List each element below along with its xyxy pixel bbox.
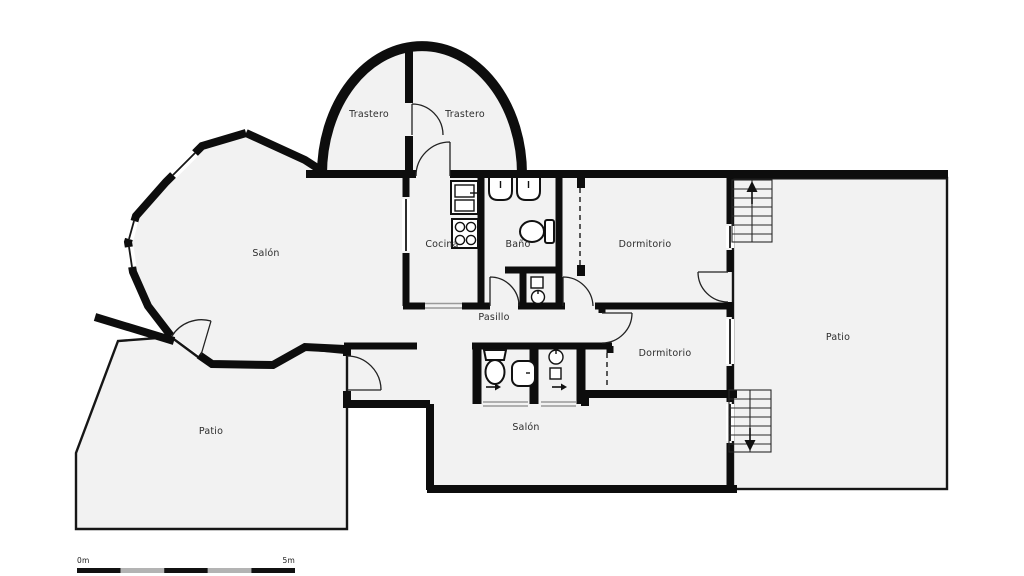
washer-icon (531, 277, 543, 288)
scale-segment (121, 568, 165, 573)
sink-icon (512, 361, 535, 386)
drain-icon (532, 291, 545, 304)
room-label-cocina: Cocina (425, 239, 458, 250)
room-label-trastero-left: Trastero (348, 109, 389, 120)
toilet-icon (484, 350, 506, 384)
sink-icon (489, 178, 512, 200)
room-label-salon-bottom: Salón (512, 422, 539, 433)
floor-plan-svg: Trastero Trastero Salón Cocina Baño Dorm… (0, 0, 1024, 576)
room-label-dormitorio-right: Dormitorio (639, 348, 692, 359)
window (129, 247, 132, 267)
room-label-dormitorio-top: Dormitorio (619, 239, 672, 250)
boiler-icon (550, 368, 561, 379)
scale-bar: 0m 5m (77, 556, 295, 573)
scale-end-label: 5m (283, 556, 295, 565)
sink-icon (517, 178, 540, 200)
floor-plan-page: Trastero Trastero Salón Cocina Baño Dorm… (0, 0, 1024, 576)
scale-segment (251, 568, 295, 573)
scale-start-label: 0m (77, 556, 89, 565)
room-label-salon: Salón (252, 248, 279, 259)
room-label-pasillo: Pasillo (478, 312, 509, 323)
window (129, 221, 134, 239)
room-label-patio-right: Patio (826, 332, 850, 343)
scale-segment (208, 568, 252, 573)
fridge-icon (451, 181, 478, 214)
room-label-trastero-right: Trastero (444, 109, 485, 120)
scale-segment (77, 568, 121, 573)
tap-icon (549, 350, 563, 364)
room-label-bano: Baño (506, 239, 531, 250)
scale-segment (164, 568, 208, 573)
room-label-patio-left: Patio (199, 426, 223, 437)
